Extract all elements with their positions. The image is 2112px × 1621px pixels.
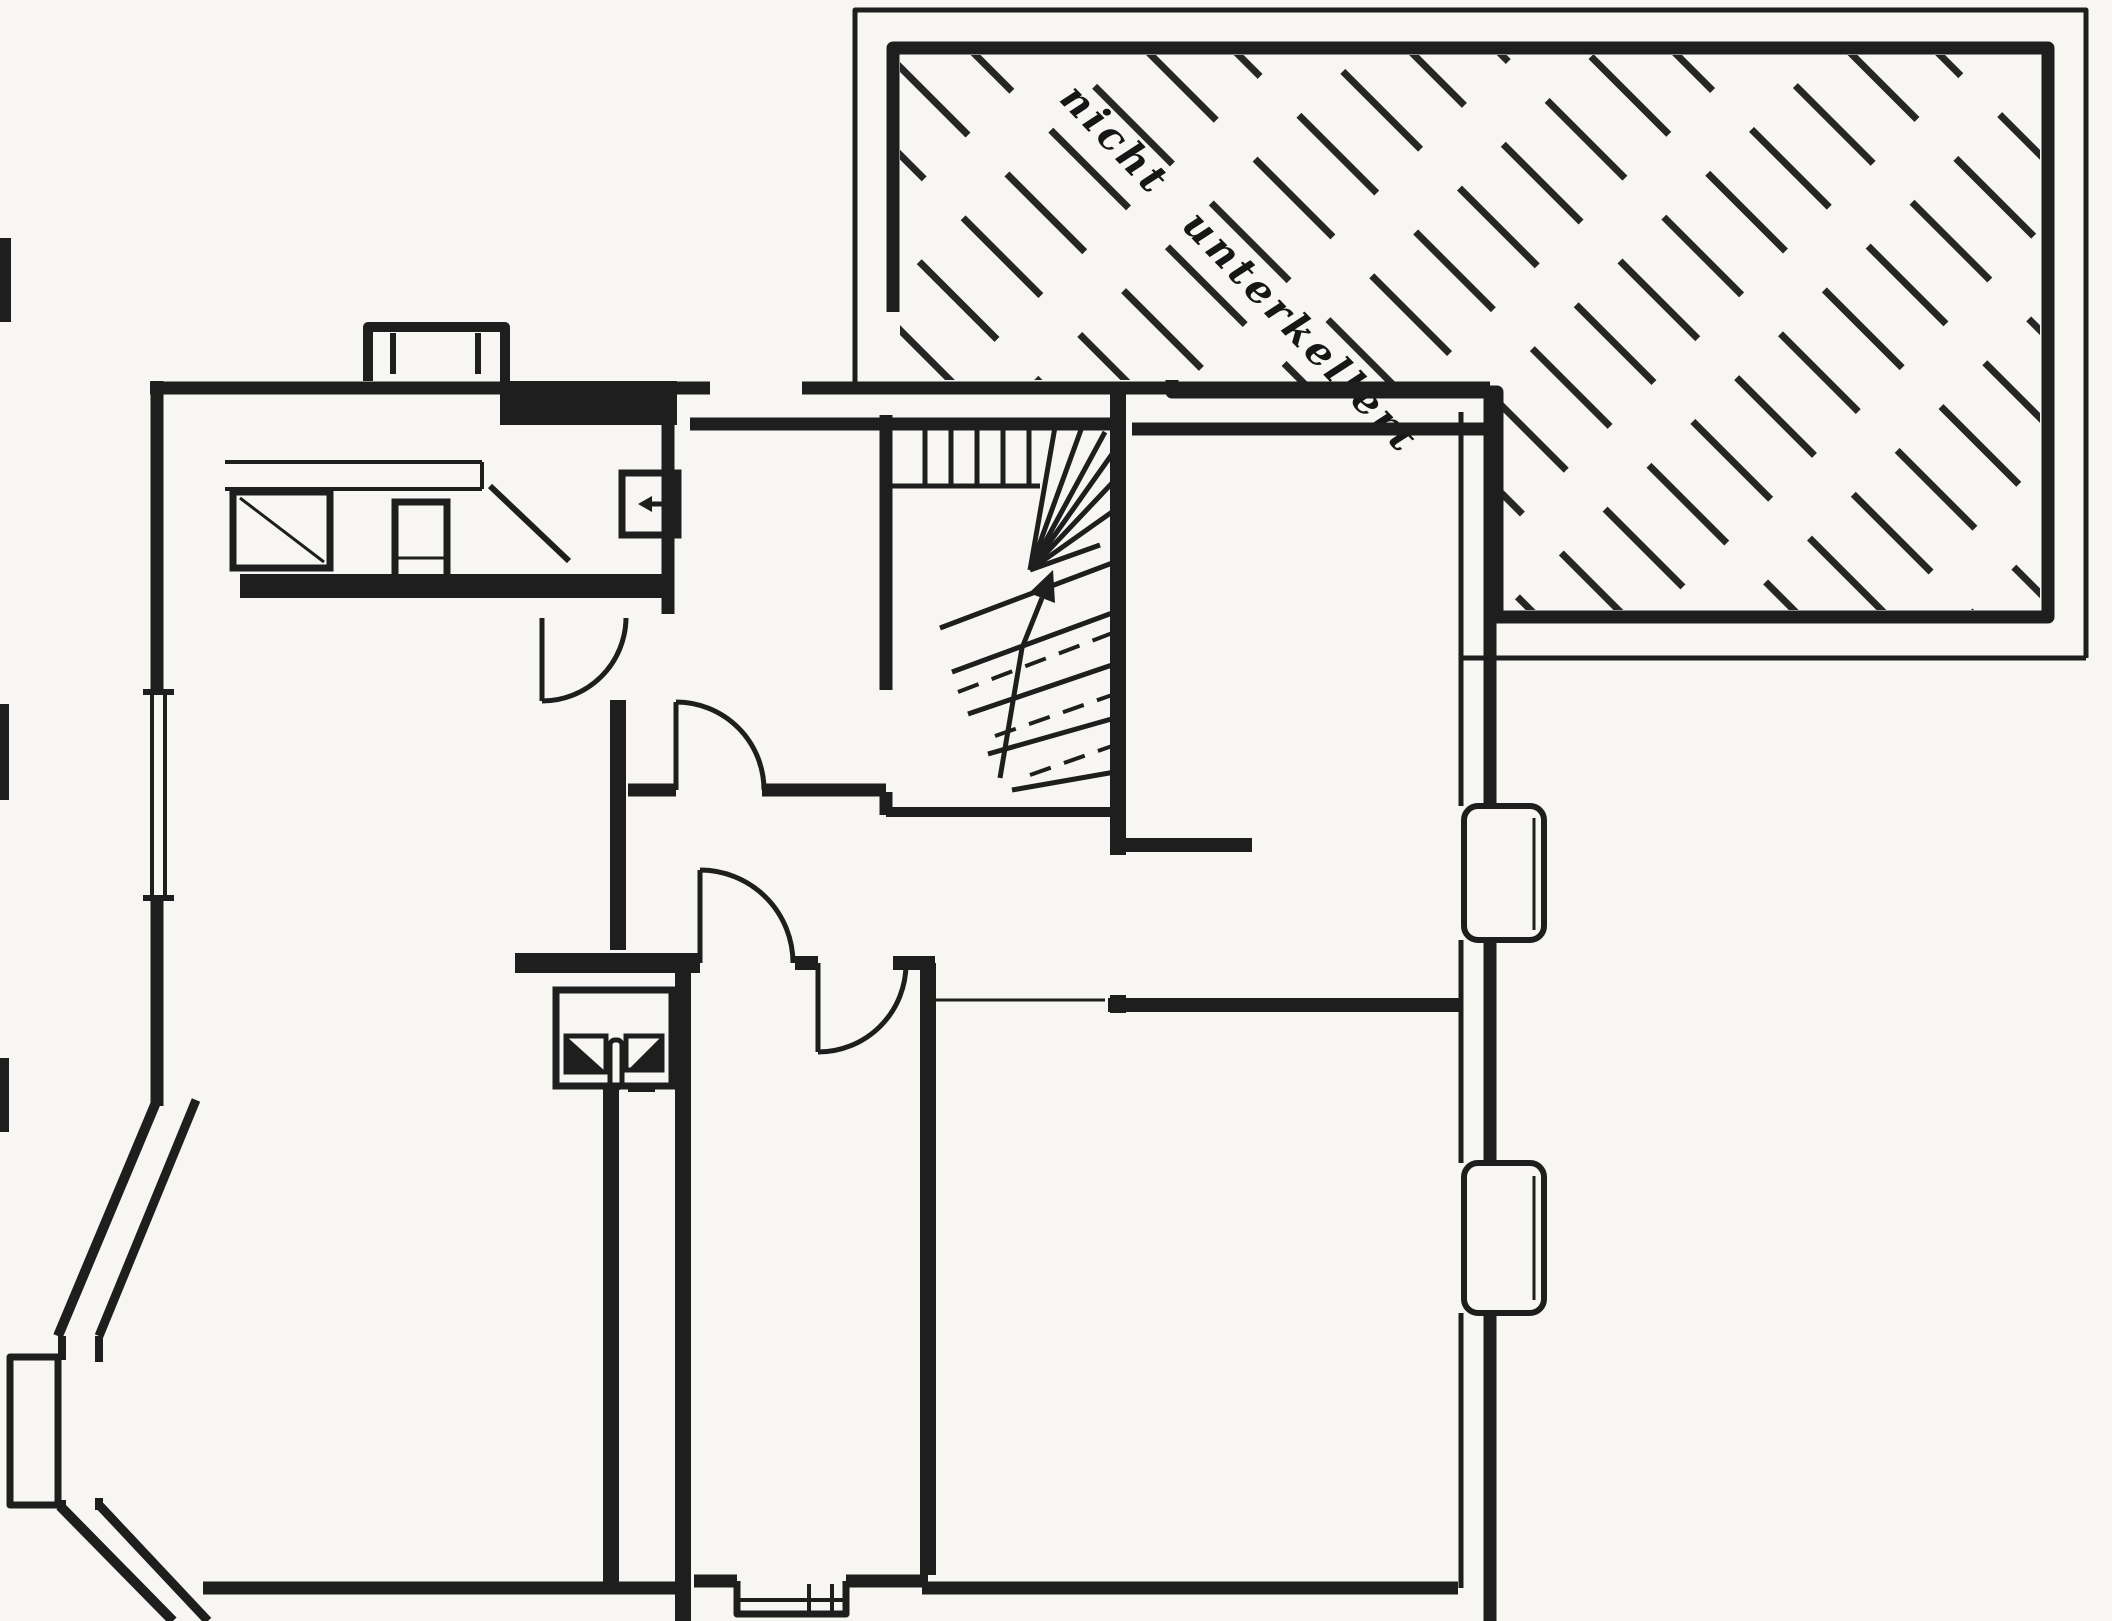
scan-edge-mark (0, 704, 9, 800)
scan-edge-mark (0, 1058, 9, 1132)
top-wall-band (500, 381, 677, 425)
floor-plan-svg: nicht unterkellert (0, 0, 2112, 1621)
floor-plan-scan: nicht unterkellert (0, 0, 2112, 1621)
scan-edge-mark (0, 238, 11, 322)
scan-washout (710, 376, 802, 398)
